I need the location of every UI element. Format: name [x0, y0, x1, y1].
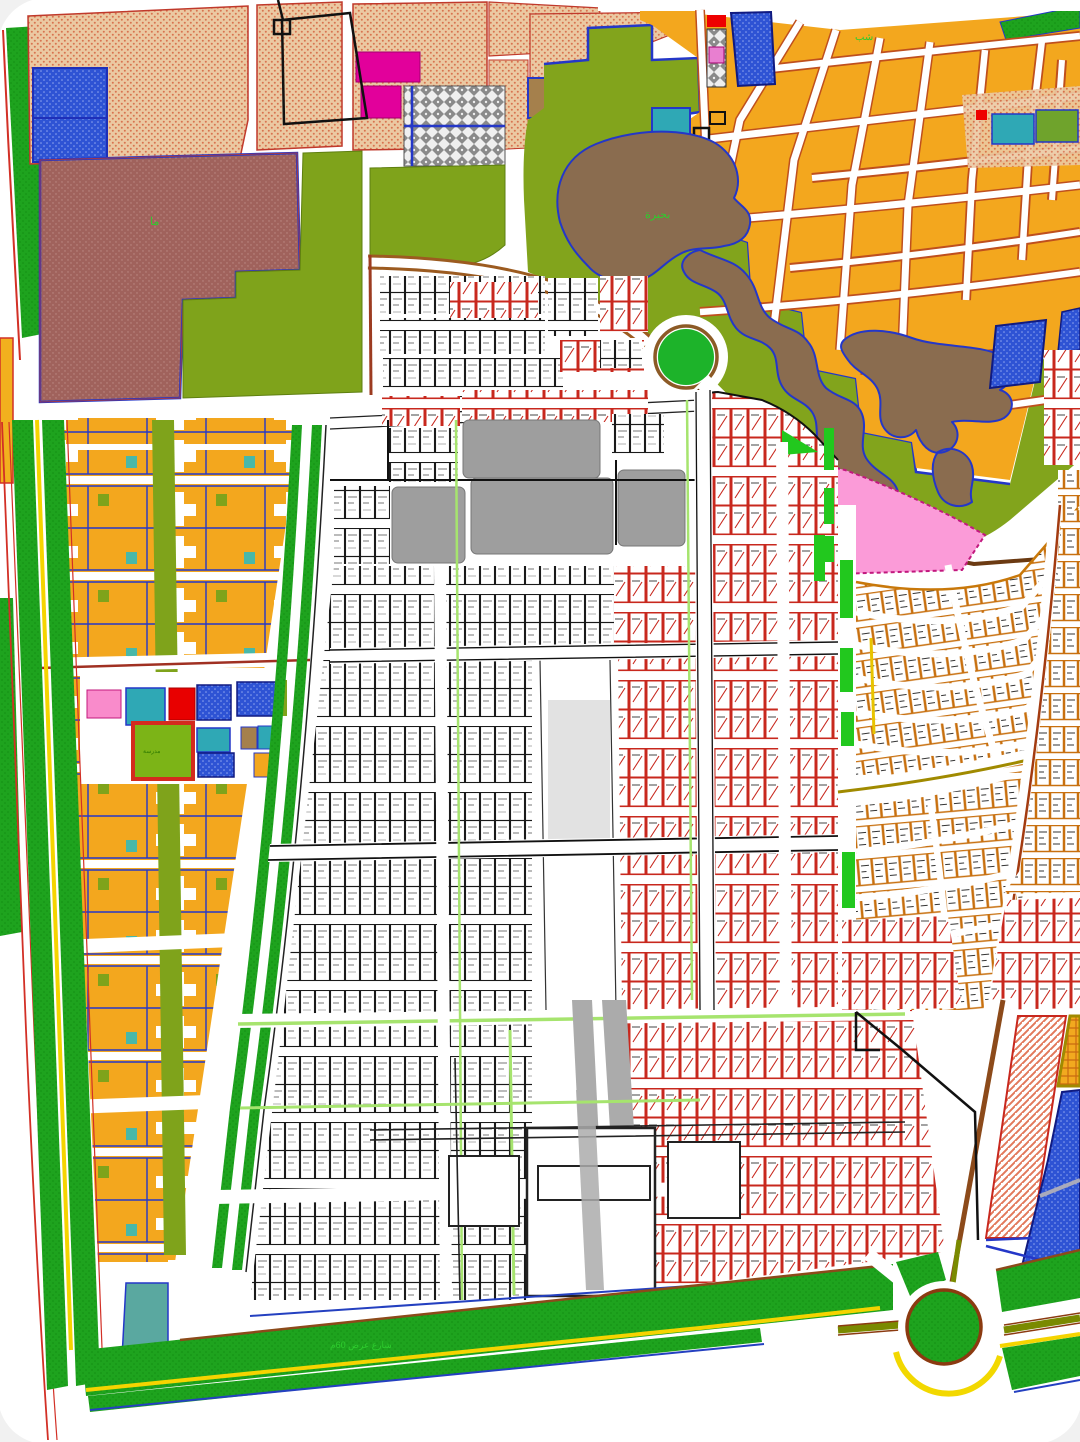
svg-text:شب: شب — [855, 32, 873, 43]
svg-text:ما: ما — [150, 216, 159, 228]
svg-text:شارع عرض 60م: شارع عرض 60م — [330, 1340, 392, 1351]
svg-text:مدرسة: مدرسة — [143, 749, 161, 755]
svg-text:بحيرة: بحيرة — [645, 209, 670, 221]
